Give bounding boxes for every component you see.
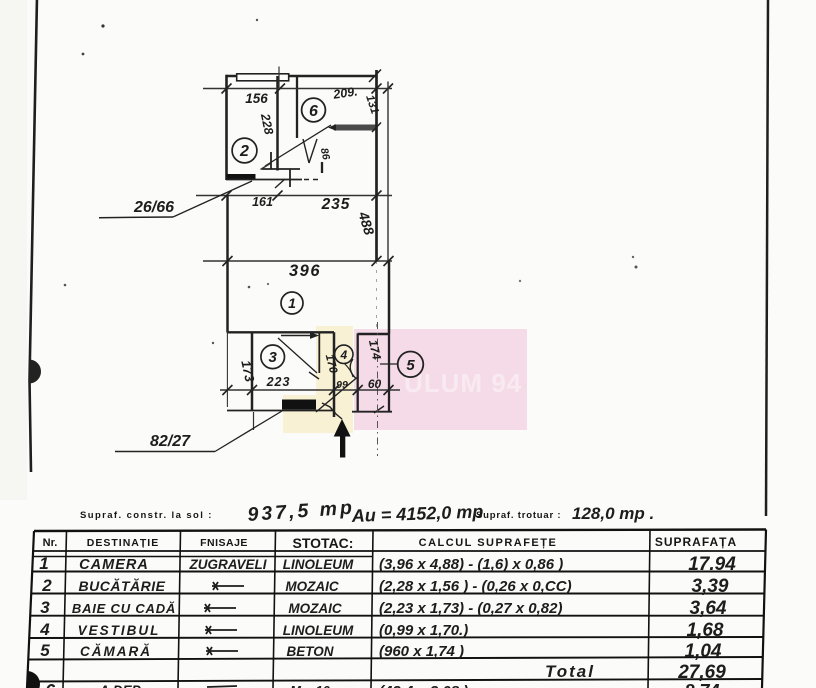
- svg-text:128,0 mp .: 128,0 mp .: [572, 504, 654, 523]
- svg-text:4: 4: [39, 620, 50, 639]
- svg-text:1,68: 1,68: [687, 620, 724, 641]
- svg-text:3: 3: [40, 598, 50, 617]
- svg-text:CĂMARĂ: CĂMARĂ: [80, 644, 152, 659]
- svg-text:6: 6: [45, 681, 56, 688]
- svg-text:5: 5: [406, 357, 415, 374]
- svg-text:LINOLEUM: LINOLEUM: [283, 557, 354, 572]
- svg-text:8,74: 8,74: [684, 681, 719, 688]
- svg-text:FNISAJE: FNISAJE: [200, 537, 248, 549]
- svg-text:396: 396: [289, 262, 321, 280]
- svg-text:ULUM 94: ULUM 94: [404, 368, 522, 398]
- svg-text:82/27: 82/27: [150, 433, 191, 450]
- svg-text:LINOLEUM: LINOLEUM: [283, 623, 354, 638]
- svg-text:(3,96 x 4,88) - (1,6) x 0,86 ): (3,96 x 4,88) - (1,6) x 0,86 ): [379, 556, 563, 573]
- svg-text:3,39: 3,39: [692, 576, 729, 597]
- svg-text:M x 10: M x 10: [290, 683, 331, 688]
- svg-text:(2,28 x 1,56 ) - (0,26 x 0,CC): (2,28 x 1,56 ) - (0,26 x 0,CC): [379, 578, 572, 595]
- svg-text:BETON: BETON: [286, 644, 333, 659]
- svg-text:2: 2: [239, 143, 249, 160]
- svg-text:A.DEP: A.DEP: [98, 683, 141, 688]
- svg-text:(960 x 1,74 ): (960 x 1,74 ): [379, 643, 464, 660]
- svg-text:DESTINAȚIE: DESTINAȚIE: [87, 537, 159, 549]
- svg-text:Total: Total: [545, 662, 595, 681]
- svg-text:99: 99: [336, 379, 348, 391]
- svg-text:(43,4 x 3,08 ): (43,4 x 3,08 ): [379, 683, 468, 688]
- svg-text:17.94: 17.94: [688, 554, 736, 575]
- svg-text:Nr.: Nr.: [43, 537, 58, 549]
- svg-text:2: 2: [41, 576, 52, 595]
- svg-text:3,64: 3,64: [690, 598, 727, 619]
- svg-text:Supraf. constr. la sol :: Supraf. constr. la sol :: [80, 510, 213, 521]
- svg-text:Supraf. trotuar :: Supraf. trotuar :: [476, 510, 561, 521]
- svg-text:CALCUL SUPRAFEȚE: CALCUL SUPRAFEȚE: [419, 537, 558, 549]
- svg-text:SUPRAFAȚA: SUPRAFAȚA: [655, 535, 737, 549]
- svg-text:4: 4: [339, 348, 347, 362]
- svg-text:STOTAC:: STOTAC:: [293, 535, 354, 551]
- svg-text:1: 1: [39, 554, 48, 573]
- svg-text:6: 6: [309, 103, 318, 120]
- svg-text:60: 60: [368, 377, 382, 391]
- svg-text:27,69: 27,69: [677, 662, 726, 683]
- svg-text:3: 3: [269, 349, 278, 366]
- svg-text:5: 5: [40, 641, 50, 660]
- svg-text:CAMERA: CAMERA: [79, 557, 149, 573]
- svg-text:MOZAIC: MOZAIC: [288, 601, 341, 616]
- svg-text:26/66: 26/66: [133, 199, 174, 216]
- svg-text:MOZAIC: MOZAIC: [285, 579, 338, 594]
- svg-text:BUCĂTĂRIE: BUCĂTĂRIE: [79, 578, 166, 594]
- svg-text:VESTIBUL: VESTIBUL: [78, 623, 161, 638]
- svg-text:BAIE CU CADĂ: BAIE CU CADĂ: [72, 601, 176, 616]
- svg-text:161: 161: [252, 195, 273, 209]
- svg-text:235: 235: [321, 196, 351, 213]
- svg-text:1: 1: [288, 295, 296, 311]
- svg-text:ZUGRAVELI: ZUGRAVELI: [189, 557, 267, 572]
- svg-text:1,04: 1,04: [685, 641, 722, 662]
- svg-text:(0,99 x 1,70.): (0,99 x 1,70.): [379, 622, 468, 639]
- svg-text:156: 156: [245, 91, 268, 106]
- svg-text:223: 223: [266, 375, 291, 389]
- svg-text:(2,23 x 1,73) - (0,27 x 0,82): (2,23 x 1,73) - (0,27 x 0,82): [379, 600, 562, 617]
